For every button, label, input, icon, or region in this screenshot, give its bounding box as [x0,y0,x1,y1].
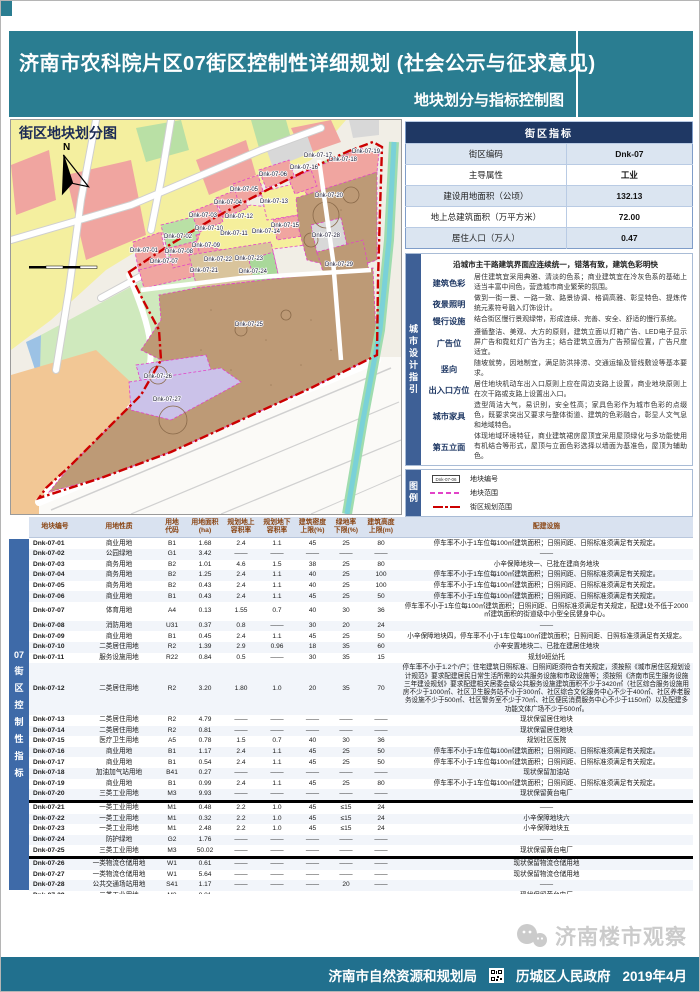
planning-poster-page: 济南市农科院片区07街区控制性详细规划 (社会公示与征求意见) 地块划分与指标控… [0,0,700,992]
table-cell: —— [259,768,295,779]
indicator-row: 地上总建筑面积（万平方米）72.00 [406,207,693,228]
table-cell: 二类居住用地 [81,715,157,726]
table-cell: 8.81 [187,891,223,894]
table-cell: 消防用地 [81,621,157,632]
plot-id-cell: Dnk-07-15 [29,736,81,747]
table-cell: 1.39 [187,642,223,653]
table-cell: —— [330,726,362,737]
guide-intro: 沿城市主干路建筑界面应连续统一，错落有致，建筑色彩明快 [424,257,687,273]
guide-side-label: 城市设计指引 [407,324,420,396]
table-cell: 1.76 [187,835,223,846]
table-cell: 25 [330,538,362,549]
table-cell: 40 [295,602,330,621]
table-cell: —— [295,789,330,801]
plot-id-cell: Dnk-07-14 [29,726,81,737]
column-header: 规划地上 容积率 [223,517,259,538]
table-row: Dnk-07-10二类居住用地R21.392.90.96183560小辛安置地块… [29,642,693,653]
table-cell: 100 [362,581,400,592]
table-cell: 45 [295,814,330,825]
column-header: 绿地率 下限(%) [330,517,362,538]
indicator-label: 主导属性 [406,165,567,186]
legend-items: Dnk-07-06地块编号地块范围街区规划范围 [421,470,692,516]
table-cell: —— [330,870,362,881]
plot-id-cell: Dnk-07-03 [29,560,81,571]
table-cell: B1 [157,591,187,602]
plot-id-cell: Dnk-07-05 [29,581,81,592]
table-cell: —— [295,768,330,779]
table-cell: 45 [295,591,330,602]
table-cell: 30 [295,621,330,632]
table-cell: 服务设施用地 [81,653,157,664]
table-cell: 3.20 [187,663,223,715]
table-row: Dnk-07-02公园绿地G13.42———————————— [29,549,693,560]
table-cell: 1.80 [223,663,259,715]
table-cell: —— [400,835,693,846]
header-divider [576,31,578,117]
table-cell: 一类物流仓储用地 [81,857,157,869]
table-cell: B1 [157,757,187,768]
table-cell: 0.54 [187,757,223,768]
table-cell: —— [330,857,362,869]
table-cell: B1 [157,779,187,790]
table-row: Dnk-07-23一类工业用地M12.482.21.045≤1524小辛保障地块… [29,824,693,835]
table-row: Dnk-07-26一类物流仓储用地W10.61——————————现状保留物流仓… [29,857,693,869]
indicator-label: 建设用地面积（公顷） [406,186,567,207]
legend-side-bar: 图例 [406,470,421,516]
plot-id-cell: Dnk-07-21 [29,801,81,813]
table-cell: 1.5 [259,560,295,571]
table-cell: 25 [330,779,362,790]
table-cell: 0.7 [259,736,295,747]
table-cell: 三类工业用地 [81,789,157,801]
table-cell: 2.4 [223,538,259,549]
table-cell: 小辛保障地块六 [400,814,693,825]
column-header: 用地面积 (ha) [187,517,223,538]
table-cell: 加油加气站用地 [81,768,157,779]
table-cell: 25 [330,570,362,581]
table-cell: —— [295,715,330,726]
plot-label: Dnk-07-07 [150,259,179,265]
table-row: Dnk-07-21一类工业用地M10.482.21.045≤1524—— [29,801,693,813]
table-cell: —— [362,857,400,869]
table-cell: 0.45 [187,631,223,642]
table-cell: —— [259,549,295,560]
table-cell: 70 [362,663,400,715]
table-cell: —— [259,845,295,857]
plot-id-cell: Dnk-07-07 [29,602,81,621]
plot-label: Dnk-07-05 [230,187,259,193]
table-cell: 体育用地 [81,602,157,621]
legend-item-label: 街区规划范围 [470,502,512,512]
table-cell: 小辛保障地块一、已批在建商务地块 [400,560,693,571]
plot-label: Dnk-07-24 [239,269,268,275]
table-cell: —— [362,835,400,846]
indicator-row: 主导属性工业 [406,165,693,186]
legend-item-label: 地块范围 [470,488,498,498]
table-cell: R2 [157,642,187,653]
table-cell: R2 [157,715,187,726]
guide-item-text: 结合街区慢行景观绿带，形成连续、完善、安全、舒适的慢行系统。 [474,315,687,327]
table-cell: 45 [295,747,330,758]
plot-label: Dnk-07-15 [271,223,300,229]
table-cell: 0.99 [187,779,223,790]
footer-date: 2019年4月 [622,965,687,985]
guide-item-label: 建筑色彩 [424,277,474,289]
guide-item: 建筑色彩居住建筑宜采用典雅、清淡的色系；商业建筑宜在冷灰色系的基础上适当丰富中间… [424,273,687,293]
table-cell: 1.55 [223,602,259,621]
table-cell: —— [223,715,259,726]
table-cell: 45 [295,538,330,549]
table-cell: 现状保留加油站 [400,768,693,779]
table-row: Dnk-07-05商务用地B20.432.41.14025100停车率不小于1车… [29,581,693,592]
table-cell: 3.42 [187,549,223,560]
table-row: Dnk-07-07体育用地A40.131.550.7403036停车率不小于1车… [29,602,693,621]
plot-id-cell: Dnk-07-27 [29,870,81,881]
table-cell: M3 [157,891,187,894]
table-cell: 0.5 [223,653,259,664]
table-cell: —— [223,857,259,869]
table-cell: 0.96 [259,642,295,653]
table-row: Dnk-07-12二类居住用地R23.201.801.0203570停车率不小于… [29,663,693,715]
table-cell: 50 [362,747,400,758]
watermark: 济南楼市观察 [515,921,687,951]
table-cell: 一类工业用地 [81,814,157,825]
table-cell: G1 [157,549,187,560]
column-header: 建筑密度 上限(%) [295,517,330,538]
table-cell: —— [223,726,259,737]
table-cell: 0.32 [187,814,223,825]
table-cell: 1.0 [259,824,295,835]
table-cell: 停车率不小于1车位每100㎡建筑面积；日照间距、日照标准须满足有关规定。 [400,779,693,790]
table-cell: 停车率不小于1车位每100㎡建筑面积；日照间距、日照标准须满足有关规定。 [400,747,693,758]
table-cell: 停车率不小于1车位每100㎡建筑面积；日照间距、日照标准须满足有关规定，配建1处… [400,602,693,621]
table-row: Dnk-07-22一类工业用地M10.322.21.045≤1524小辛保障地块… [29,814,693,825]
table-cell: 2.9 [223,642,259,653]
guide-item-text: 做到一街一景、一路一致、路景协调、格调高雅、彰显特色、提炼传统元素符号融入灯饰设… [474,294,687,314]
table-cell: —— [223,549,259,560]
table-cell: —— [362,880,400,891]
table-cell: 45 [295,801,330,813]
column-header: 用地 代码 [157,517,187,538]
plot-id-cell: Dnk-07-26 [29,857,81,869]
table-cell: —— [259,653,295,664]
indicator-label: 居住人口（万人） [406,228,567,249]
magenta-dashed-line-icon [430,492,462,494]
table-cell: 50.02 [187,845,223,857]
legend-item: 地块范围 [429,488,684,498]
indicator-label: 地上总建筑面积（万平方米） [406,207,567,228]
table-cell: 公园绿地 [81,549,157,560]
table-row: Dnk-07-20三类工业用地M39.93——————————现状保留黄台电厂 [29,789,693,801]
plot-id-cell: Dnk-07-09 [29,631,81,642]
plot-id-cell: Dnk-07-08 [29,621,81,632]
guide-item-label: 出入口方位 [424,384,474,396]
table-cell: M1 [157,814,187,825]
guide-item-label: 竖向 [424,363,474,375]
column-header: 配建设施 [400,517,693,538]
table-cell: B2 [157,570,187,581]
table-side-column: 07街区控制性指标 [9,517,29,894]
plot-id-cell: Dnk-07-02 [29,549,81,560]
table-cell: 1.17 [187,747,223,758]
plot-id-cell: Dnk-07-25 [29,845,81,857]
table-cell: 二类居住用地 [81,726,157,737]
table-cell: —— [223,835,259,846]
table-cell: 现状保留黄台电厂 [400,789,693,801]
table-row: Dnk-07-04商务用地B21.252.41.14025100停车率不小于1车… [29,570,693,581]
table-cell: 小辛保障地块四，停车率不小于1车位每100㎡建筑面积；日照间距、日照标准须满足有… [400,631,693,642]
table-side-label: 07街区控制性指标 [9,539,29,890]
plot-label: Dnk-07-21 [190,268,219,274]
table-cell: —— [295,835,330,846]
table-cell: M3 [157,845,187,857]
table-cell: A4 [157,602,187,621]
table-cell: —— [223,870,259,881]
table-cell: ≤15 [330,824,362,835]
plot-label: Dnk-07-01 [130,248,159,254]
indicator-value: Dnk-07 [566,144,692,165]
table-cell: 50 [362,591,400,602]
table-cell: 0.7 [259,602,295,621]
table-row: Dnk-07-29三类工业用地M38.81——————————现状保留黄台电厂 [29,891,693,894]
plot-label: Dnk-07-28 [312,233,341,239]
table-cell: 2.4 [223,757,259,768]
table-cell: M3 [157,789,187,801]
table-cell: B1 [157,747,187,758]
table-row: Dnk-07-28公共交通场站用地S411.17——————20———— [29,880,693,891]
table-cell: —— [362,768,400,779]
table-cell: —— [295,870,330,881]
guide-item-text: 居住建筑宜采用典雅、清淡的色系；商业建筑宜在冷灰色系的基础上适当丰富中间色，营造… [474,273,687,293]
table-row: Dnk-07-14二类居住用地R20.81——————————现状保留居住地块 [29,726,693,737]
plot-label: Dnk-07-12 [225,214,254,220]
table-cell: 2.4 [223,581,259,592]
plot-label: Dnk-07-09 [192,243,221,249]
table-cell: 45 [295,757,330,768]
guide-item: 出入口方位居住地块机动车出入口原则上应在周边支路上设置，商业地块原则上在次干路或… [424,380,687,400]
table-row: Dnk-07-06商业用地B10.432.41.1452550停车率不小于1车位… [29,591,693,602]
table-cell: 80 [362,560,400,571]
table-cell: —— [295,845,330,857]
table-cell: 1.1 [259,747,295,758]
qr-code-icon [489,968,504,983]
table-cell: 9.93 [187,789,223,801]
table-cell: —— [362,549,400,560]
table-cell: 2.2 [223,801,259,813]
plot-label: Dnk-07-20 [315,193,344,199]
table-row: Dnk-07-27一类物流仓储用地W15.64——————————现状保留物流仓… [29,870,693,881]
scale-bar [29,266,97,269]
plot-label: Dnk-07-06 [259,172,288,178]
plot-label: Dnk-07-14 [252,229,281,235]
table-cell: 2.4 [223,570,259,581]
guide-item: 夜景照明做到一街一景、一路一致、路景协调、格调高雅、彰显特色、提炼传统元素符号融… [424,294,687,314]
table-cell: R22 [157,653,187,664]
table-cell: 商业用地 [81,747,157,758]
table-cell: 1.01 [187,560,223,571]
table-row: Dnk-07-11服务设施用地R220.840.5——303515规划9班幼托 [29,653,693,664]
plot-id-cell: Dnk-07-10 [29,642,81,653]
table-cell: —— [330,891,362,894]
table-cell: 商务用地 [81,560,157,571]
table-cell: 5.64 [187,870,223,881]
indicator-row: 居住人口（万人）0.47 [406,228,693,249]
guide-item: 竖向随坡就势，因地制宜，满足防洪排涝、交通运输及管线敷设等基本要求。 [424,359,687,379]
table-cell: 1.1 [259,779,295,790]
plot-control-table: 地块编号用地性质用地 代码用地面积 (ha)规划地上 容积率规划地下 容积率建筑… [29,517,693,894]
table-cell: S41 [157,880,187,891]
table-cell: 现状保留黄台电厂 [400,845,693,857]
table-cell: ≤15 [330,814,362,825]
table-cell: 25 [330,631,362,642]
table-cell: —— [295,880,330,891]
watermark-text: 济南楼市观察 [555,921,687,951]
table-cell: 2.4 [223,591,259,602]
table-cell: 1.1 [259,757,295,768]
table-cell: U31 [157,621,187,632]
table-cell: 停车率不小于1车位每100㎡建筑面积；日照间距、日照标准须满足有关规定。 [400,570,693,581]
table-cell: 二类居住用地 [81,642,157,653]
table-cell: 4.79 [187,715,223,726]
table-cell: 25 [330,591,362,602]
table-cell: 1.68 [187,538,223,549]
table-cell: 30 [330,602,362,621]
plot-id-cell: Dnk-07-20 [29,789,81,801]
plot-id-cell: Dnk-07-17 [29,757,81,768]
table-cell: 0.13 [187,602,223,621]
table-cell: —— [330,768,362,779]
table-cell: —— [400,880,693,891]
map-legend: 图例 Dnk-07-06地块编号地块范围街区规划范围 [405,469,693,517]
table-cell: 2.2 [223,814,259,825]
table-cell: 二类居住用地 [81,663,157,715]
table-cell: —— [259,870,295,881]
legend-side-label: 图例 [407,481,420,505]
page-title: 济南市农科院片区07街区控制性详细规划 (社会公示与征求意见) [19,47,596,76]
indicator-value: 132.13 [566,186,692,207]
table-cell: 0.84 [187,653,223,664]
table-cell: 防护绿地 [81,835,157,846]
table-cell: 0.48 [187,801,223,813]
table-cell: 20 [330,880,362,891]
table-row: Dnk-07-24防护绿地G21.76———————————— [29,835,693,846]
table-cell: —— [330,789,362,801]
table-cell: —— [259,857,295,869]
table-cell: 1.1 [259,591,295,602]
table-cell: 商务用地 [81,570,157,581]
table-cell: —— [223,789,259,801]
table-cell: 三类工业用地 [81,891,157,894]
plot-id-cell: Dnk-07-16 [29,747,81,758]
plot-label: Dnk-07-23 [235,256,264,262]
table-cell: 30 [295,653,330,664]
guide-item-label: 城市家具 [424,410,474,422]
column-header: 规划地下 容积率 [259,517,295,538]
table-cell: 停车率不小于1车位每100㎡建筑面积；日照间距、日照标准须满足有关规定。 [400,581,693,592]
table-cell: 停车率不小于1车位每100㎡建筑面积；日照间距、日照标准须满足有关规定。 [400,757,693,768]
column-header: 地块编号 [29,517,81,538]
table-cell: —— [330,549,362,560]
table-cell: —— [330,835,362,846]
table-cell: 45 [295,779,330,790]
table-cell: 小辛保障地块五 [400,824,693,835]
guide-body: 沿城市主干路建筑界面应连续统一，错落有致，建筑色彩明快 建筑色彩居住建筑宜采用典… [421,254,692,465]
control-indicator-table-zone: 07街区控制性指标 地块编号用地性质用地 代码用地面积 (ha)规划地上 容积率… [9,517,693,894]
table-cell: M1 [157,824,187,835]
indicator-value: 72.00 [566,207,692,228]
plot-id-cell: Dnk-07-24 [29,835,81,846]
guide-item-text: 随坡就势，因地制宜，满足防洪排涝、交通运输及管线敷设等基本要求。 [474,359,687,379]
table-cell: 35 [330,653,362,664]
table-cell: —— [223,768,259,779]
table-cell: 35 [330,642,362,653]
plot-label: Dnk-07-04 [214,200,243,206]
guide-item-label: 夜景照明 [424,298,474,310]
table-cell: 2.48 [187,824,223,835]
table-row: Dnk-07-08消防用地U310.370.8——302024—— [29,621,693,632]
table-row: Dnk-07-17商业用地B10.542.41.1452550停车率不小于1车位… [29,757,693,768]
plot-id-cell: Dnk-07-12 [29,663,81,715]
table-row: Dnk-07-16商业用地B11.172.41.1452550停车率不小于1车位… [29,747,693,758]
table-cell: 停车率不小于1.2个/户；住宅建筑日照标准、日照间距须符合有关规定，须按照《城市… [400,663,693,715]
table-cell: 50 [362,757,400,768]
plot-label: Dnk-07-22 [204,257,233,263]
table-cell: 20 [295,663,330,715]
table-cell: 商业用地 [81,779,157,790]
north-label: N [63,142,70,153]
page-subtitle: 地块划分与指标控制图 [414,89,564,110]
plot-id-cell: Dnk-07-28 [29,880,81,891]
district-indicator-table: 街区指标 街区编码Dnk-07主导属性工业建设用地面积（公顷）132.13地上总… [405,121,693,249]
table-cell: 停车率不小于1车位每100㎡建筑面积；日照间距、日照标准须满足有关规定。 [400,591,693,602]
table-cell: —— [259,891,295,894]
table-cell: 医疗卫生用地 [81,736,157,747]
table-cell: 一类工业用地 [81,801,157,813]
table-cell: 24 [362,824,400,835]
table-cell: 50 [362,631,400,642]
table-cell: B2 [157,560,187,571]
plot-id-cell: Dnk-07-04 [29,570,81,581]
guide-item-label: 慢行设施 [424,315,474,327]
table-cell: 15 [362,653,400,664]
table-cell: —— [223,880,259,891]
table-cell: 25 [330,560,362,571]
table-cell: 40 [295,581,330,592]
table-cell: R2 [157,663,187,715]
table-cell: —— [259,726,295,737]
wechat-logo-icon [515,922,549,950]
plot-label: Dnk-07-03 [189,213,218,219]
table-cell: 80 [362,779,400,790]
table-cell: 100 [362,570,400,581]
plot-label: Dnk-07-11 [220,231,248,237]
table-row: Dnk-07-03商务用地B21.014.61.5382580小辛保障地块一、已… [29,560,693,571]
plot-id-cell: Dnk-07-19 [29,779,81,790]
column-header: 建筑高度 上限(m) [362,517,400,538]
table-cell: —— [295,891,330,894]
table-cell: 0.78 [187,736,223,747]
table-cell: 36 [362,736,400,747]
table-cell: 商业用地 [81,757,157,768]
plot-id-cell: Dnk-07-06 [29,591,81,602]
table-cell: 现状保留黄台电厂 [400,891,693,894]
indicator-row: 街区编码Dnk-07 [406,144,693,165]
table-cell: 一类物流仓储用地 [81,870,157,881]
table-row: Dnk-07-19商业用地B10.992.41.1452580停车率不小于1车位… [29,779,693,790]
table-row: Dnk-07-25三类工业用地M350.02——————————现状保留黄台电厂 [29,845,693,857]
legend-item: 街区规划范围 [429,502,684,512]
table-cell: 60 [362,642,400,653]
